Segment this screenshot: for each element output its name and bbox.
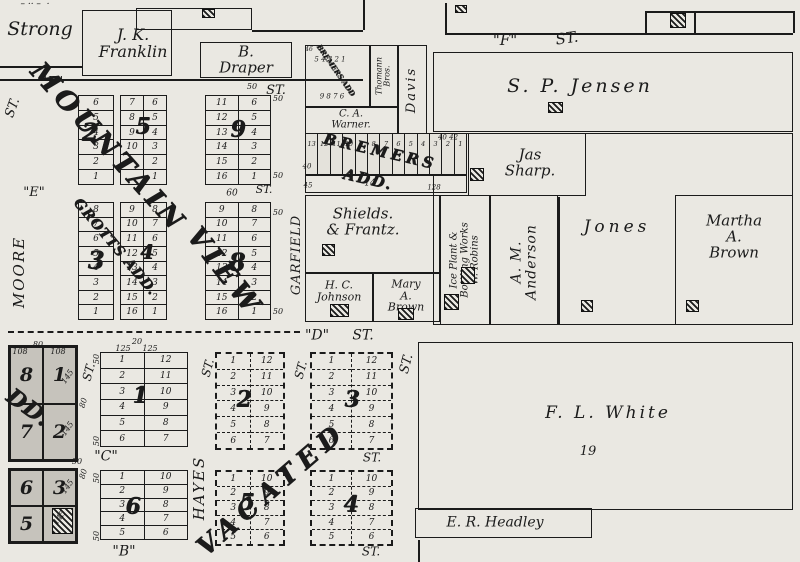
parcel-label-ice-plant-w-robins: Ice Plant &Bottling WorksW. Robins	[449, 222, 481, 297]
building-hatch	[444, 294, 459, 310]
parcel-label-shields-frantz: Shields.& Frantz.	[326, 206, 399, 238]
street-hayes: HAYES	[192, 456, 208, 520]
lot: 6	[144, 96, 166, 110]
lot: 12	[251, 354, 284, 369]
street-st-mid: ST.	[293, 360, 310, 381]
lot: 10	[145, 383, 188, 399]
dim: 50	[273, 172, 283, 180]
dim: 125	[142, 345, 157, 353]
label-line: C. A.	[331, 110, 370, 121]
building-hatch	[470, 168, 484, 181]
parcel-label-martha-a-brown: MarthaA.Brown	[706, 213, 762, 260]
dim: 80	[79, 397, 90, 409]
parcel-label-davis: Davis	[405, 67, 419, 113]
dim: 108	[12, 348, 27, 356]
street-f-left-st: ST.	[3, 96, 23, 119]
lot: 8	[145, 415, 188, 431]
label-line: H. C.	[317, 279, 362, 291]
lot: 1	[79, 304, 113, 319]
label-line: Anderson	[524, 224, 539, 300]
street-st-bottom: ST.	[362, 546, 380, 559]
lot: 8	[251, 416, 284, 432]
parcel-label-strong: Strong	[7, 20, 73, 40]
street-garfield-st: ST.	[256, 184, 273, 196]
parcel-label-hc-johnson: H. C.Johnson	[317, 279, 362, 302]
street-st-right-mid: ST.	[363, 452, 381, 465]
label-line: S. P. Jensen	[507, 77, 653, 97]
parcel-label-jk-franklin: J. K.Franklin	[99, 27, 168, 61]
lot: 16	[206, 169, 238, 184]
lot: 3	[144, 139, 166, 154]
dim: 20	[132, 338, 142, 346]
street-d-st: ST.	[352, 329, 373, 344]
lot: 12	[145, 353, 188, 368]
boundary	[418, 540, 420, 562]
street-hayes-st: ST.	[200, 358, 217, 379]
lot: 7	[239, 217, 271, 232]
building-hatch	[330, 304, 349, 317]
lot: 9	[145, 399, 188, 415]
label-line: Jones	[584, 219, 651, 237]
lot: 7	[352, 432, 391, 448]
lot: 8	[352, 416, 391, 432]
lot: 6	[352, 529, 391, 544]
lot: 12	[352, 354, 391, 369]
block-6: 12345109876	[100, 470, 188, 540]
building-hatch	[686, 300, 699, 312]
parcel-label-sp-jensen: S. P. Jensen	[507, 77, 653, 97]
block-number-5: 5	[135, 115, 150, 138]
building-hatch	[455, 5, 467, 13]
lot: 2	[101, 368, 144, 384]
street-f-right: "F"	[493, 33, 517, 49]
parcel-label-jas-sharp: JasSharp.	[505, 147, 555, 179]
lot: 9	[145, 484, 188, 498]
block-number-1: 1	[132, 384, 147, 407]
label-line: Davis	[405, 67, 419, 113]
street-moore: MOORE	[12, 236, 28, 308]
lot: 7	[145, 511, 188, 525]
dim: 50	[72, 458, 82, 466]
street-d-dashed	[8, 331, 300, 333]
parcel-label-fl-white: F. L. White	[545, 405, 671, 423]
parcel-fl-white	[418, 342, 793, 510]
block-number-2-vacated: 2	[236, 388, 251, 411]
lot: 10	[145, 471, 188, 484]
block-column: 109876	[144, 471, 188, 539]
dim: 50	[93, 473, 101, 483]
building-hatch	[461, 267, 475, 284]
block-column: 121110987	[250, 354, 284, 448]
label-line: Strong	[7, 20, 73, 40]
block-number-9: 9	[230, 118, 245, 141]
street-e: "E"	[23, 186, 44, 200]
dim: 45	[304, 182, 313, 189]
lot: 6	[145, 525, 188, 539]
building-hatch	[202, 9, 215, 18]
label-line: Bros.	[384, 57, 392, 95]
parcel-label-thomann-bros: ThomannBros.	[376, 57, 393, 95]
label-line: Brown	[706, 245, 762, 261]
lot: 9	[251, 400, 284, 416]
label-line: Draper	[219, 60, 273, 76]
dim: 50	[93, 354, 101, 364]
lot: 5	[101, 525, 144, 539]
parcel-label-ca-warner: C. A.Warner.	[331, 110, 370, 131]
label-line: Johnson	[317, 291, 362, 303]
dim: 108	[50, 348, 65, 356]
lot: 6	[239, 231, 271, 246]
block-number-4-vacated: 4	[343, 493, 358, 516]
label-line: Franklin	[99, 44, 168, 61]
parcel-label-am-anderson: A. M.Anderson	[509, 224, 538, 300]
lot: 1	[217, 472, 250, 486]
dim: 128	[427, 184, 440, 191]
lot: 2	[217, 369, 250, 385]
lot: 15	[121, 290, 143, 305]
lot: 7	[251, 432, 284, 448]
dim: 60	[226, 189, 237, 198]
dim: 46	[305, 47, 313, 53]
white-parcel-number: 19	[580, 445, 597, 459]
lot: 1	[101, 353, 144, 368]
label-line: Ice Plant &	[449, 222, 460, 297]
dim: 50	[273, 308, 283, 316]
lot: 10	[352, 472, 391, 486]
parcel-top-parcel	[136, 8, 252, 30]
block-number-4: 4	[140, 242, 154, 263]
lot: 1	[312, 472, 351, 486]
plat-map: StrongJ. K.FranklinB.DraperS. P. JensenJ…	[0, 0, 800, 562]
lot: 5	[101, 415, 144, 431]
lot: 11	[145, 368, 188, 384]
dim: 125	[115, 345, 130, 353]
label-line: E. R. Headley	[446, 516, 543, 531]
label-line: Mary	[388, 279, 424, 291]
boundary	[645, 11, 647, 33]
label-line: Warner.	[331, 120, 370, 131]
lot: 8	[145, 498, 188, 512]
dim: 50	[273, 95, 283, 103]
lot: 1	[101, 471, 144, 484]
dim: 50	[93, 531, 101, 541]
dim: 50	[247, 83, 257, 91]
lot: 6	[101, 430, 144, 446]
boundary	[694, 11, 696, 33]
lot: 2	[79, 290, 113, 305]
lot: 1	[144, 304, 166, 319]
dim: 50	[93, 436, 101, 446]
lot: 16	[121, 304, 143, 319]
block-column: 121110987	[144, 353, 188, 446]
block-number-3: 3	[88, 247, 105, 272]
shaded-lot: 6	[10, 470, 43, 506]
lot: 1	[312, 354, 351, 369]
building-hatch	[581, 300, 593, 312]
building-hatch	[548, 102, 563, 113]
lot: 11	[352, 369, 391, 385]
parcel-label-er-headley: E. R. Headley	[446, 516, 543, 531]
lot: 9	[206, 203, 238, 217]
lot: 7	[145, 430, 188, 446]
street-garfield: GARFIELD	[290, 215, 304, 295]
lot: 5	[217, 416, 250, 432]
street-st-white: ST.	[398, 353, 416, 376]
street-c: "C"	[94, 450, 118, 465]
lot: 11	[251, 369, 284, 385]
lot: 7	[121, 96, 143, 110]
boundary	[363, 0, 365, 30]
lot: 1	[79, 169, 113, 184]
block-number-6: 6	[125, 495, 140, 518]
label-line: & Frantz.	[326, 222, 399, 238]
lot: 6	[251, 529, 284, 544]
torn-edge-marks: – ·· – ·	[20, 0, 49, 9]
tiny-lot-numbers: 9 8 7 6	[320, 93, 345, 100]
boundary	[645, 11, 793, 13]
building-hatch	[398, 308, 414, 320]
dim: 40 42	[438, 134, 458, 141]
dim: 80	[79, 468, 90, 480]
label-line: Sharp.	[505, 163, 555, 179]
boundary	[793, 11, 795, 33]
boundary	[252, 30, 363, 32]
dim: 80	[33, 341, 43, 349]
street-st-west: ST.	[81, 362, 98, 383]
block-number-3-vacated: 3	[344, 388, 359, 411]
shaded-lot: 5	[10, 506, 43, 542]
lot: 10	[251, 385, 284, 401]
lot: 2	[239, 154, 271, 169]
lot: 10	[121, 217, 143, 232]
parcel-label-jones: Jones	[584, 219, 651, 237]
lot: 3	[79, 275, 113, 290]
lot: 2	[312, 369, 351, 385]
boundary	[445, 3, 447, 33]
label-line: F. L. White	[545, 405, 671, 423]
parcel-label-b-draper: B.Draper	[219, 44, 273, 76]
dim: 50	[273, 209, 283, 217]
lot: 1	[239, 169, 271, 184]
building-hatch	[670, 13, 686, 28]
lot: 5	[312, 529, 351, 544]
lot: 1	[217, 354, 250, 369]
lot: 6	[217, 432, 250, 448]
dim: 40	[303, 163, 312, 170]
street-b: "B"	[112, 545, 135, 560]
label-line: A. M.	[509, 224, 524, 300]
label-line: W. Robins	[470, 222, 481, 297]
street-d: "D"	[305, 329, 329, 344]
lot: 11	[206, 96, 238, 110]
lot: 8	[239, 203, 271, 217]
lot: 15	[206, 154, 238, 169]
street-f-right-st: ST.	[555, 30, 580, 49]
building-hatch	[322, 244, 335, 256]
